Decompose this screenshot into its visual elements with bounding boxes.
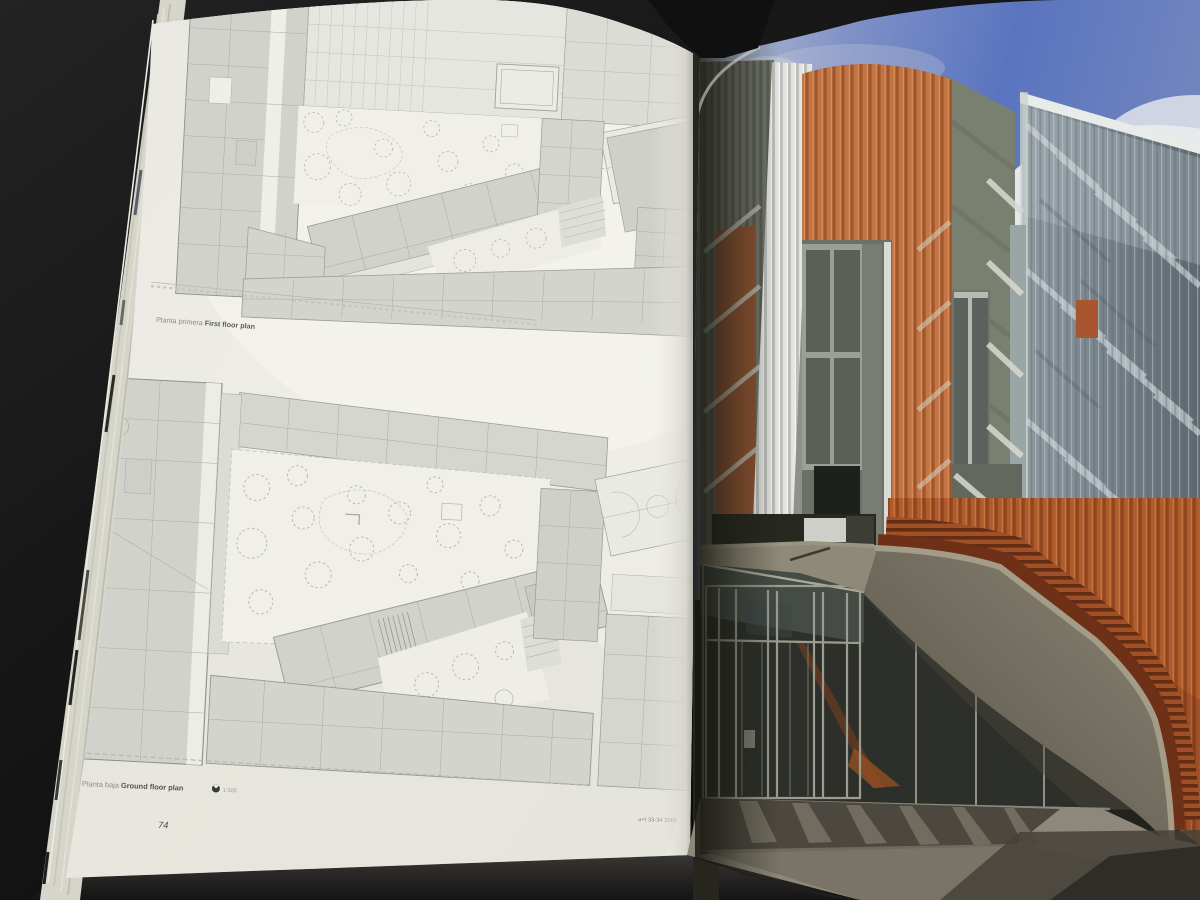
svg-text:1:500: 1:500 [223, 788, 237, 795]
svg-text:74: 74 [158, 820, 169, 830]
